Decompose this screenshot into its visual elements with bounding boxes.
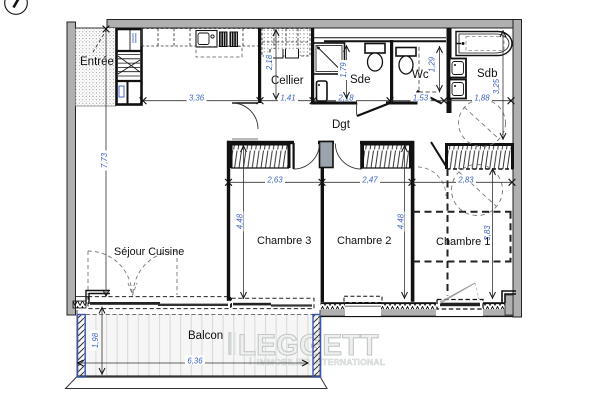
svg-text:Wc: Wc [412,69,429,81]
svg-text:3,36: 3,36 [189,94,205,103]
svg-text:Sde: Sde [350,74,370,86]
svg-text:6,36: 6,36 [187,357,203,366]
svg-text:7,73: 7,73 [100,152,109,168]
svg-text:Entrée: Entrée [80,56,114,68]
svg-text:1,53: 1,53 [413,94,429,103]
svg-text:1,29: 1,29 [428,56,437,72]
svg-text:2,63: 2,63 [266,176,283,185]
svg-text:Chambre 2: Chambre 2 [337,235,391,247]
svg-text:1,41: 1,41 [280,94,295,103]
svg-text:2,18: 2,18 [337,94,354,103]
svg-text:2,47: 2,47 [361,176,378,185]
svg-text:1,79: 1,79 [339,62,348,78]
svg-text:Dgt: Dgt [332,119,351,131]
svg-text:Sdb: Sdb [477,68,497,80]
svg-text:2,18: 2,18 [265,54,274,71]
svg-text:4,48: 4,48 [397,213,406,229]
svg-text:1,88: 1,88 [474,94,490,103]
svg-text:2,83: 2,83 [457,176,474,185]
svg-text:4,48: 4,48 [236,213,245,229]
svg-text:3,25: 3,25 [492,78,501,94]
svg-text:Chambre 1: Chambre 1 [436,236,490,248]
svg-text:Chambre 3: Chambre 3 [257,235,311,247]
svg-text:1,98: 1,98 [91,332,100,348]
svg-text:Balcon: Balcon [188,330,223,342]
svg-text:Séjour Cuisine: Séjour Cuisine [114,246,184,258]
